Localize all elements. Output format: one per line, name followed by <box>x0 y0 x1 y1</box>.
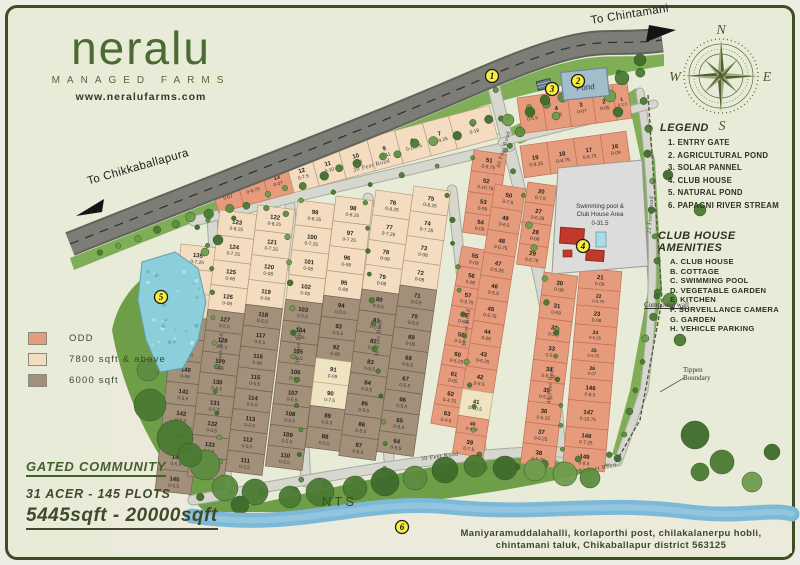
tree <box>645 125 653 133</box>
site-layout-map: 150-07140-6.75130-07120-7.5110-10100-129… <box>0 0 800 565</box>
legend-title: LEGEND <box>660 122 796 134</box>
tree <box>201 248 209 256</box>
legend-item: 1. ENTRY GATE <box>660 137 796 150</box>
tree <box>371 468 399 496</box>
tree <box>379 153 386 160</box>
club-house-amenities: CLUB HOUSE AMENITIES A. CLUB HOUSEB. COT… <box>658 230 798 334</box>
plot-size: 0-08 <box>300 290 311 297</box>
club-house-area: Swimming pool & Club House Area 0-31.5 <box>552 160 648 274</box>
tree <box>231 216 236 221</box>
compound-wall-label: Compound wall <box>644 301 689 309</box>
outbuilding <box>563 250 572 257</box>
brand-website: www.neralufarms.com <box>36 91 246 103</box>
tree <box>575 456 581 462</box>
tree <box>331 190 336 195</box>
plot-color-key: ODD7800 sqft & above6000 sqft <box>28 332 166 395</box>
svg-text:2: 2 <box>575 76 581 86</box>
tree <box>212 341 217 346</box>
project-summary: GATED COMMUNITY 31 ACER - 145 PLOTS 5445… <box>26 458 218 530</box>
plot-number: 21 <box>597 275 605 282</box>
tree <box>507 143 512 148</box>
tree <box>283 211 289 217</box>
amenity-item: B. COTTAGE <box>658 267 798 277</box>
arrow-to-chikkaballapura <box>76 199 104 216</box>
tree <box>195 225 200 230</box>
amenity-item: D. VEGETABLE GARDEN <box>658 286 798 296</box>
tree <box>204 209 214 219</box>
tree <box>463 334 467 338</box>
legend-item: 2. AGRICULTURAL POND <box>660 150 796 163</box>
tree <box>554 354 558 358</box>
plot-size: 0-06 <box>252 360 263 367</box>
tree <box>453 131 462 140</box>
tree <box>336 165 343 172</box>
tree <box>210 266 214 270</box>
plot-key-swatch <box>28 332 47 345</box>
tree <box>294 403 299 408</box>
address: Maniyaramuddalahalli, korlaporthi post, … <box>430 528 792 551</box>
tree <box>710 450 734 474</box>
tree <box>217 435 222 440</box>
plot-number: 116 <box>253 354 264 361</box>
tree <box>186 212 196 222</box>
plot-number: 115 <box>250 374 261 381</box>
tree <box>287 280 293 286</box>
tree <box>650 178 656 184</box>
tree <box>429 137 438 146</box>
svg-text:3: 3 <box>549 84 555 94</box>
plot-number: 141 <box>178 389 189 396</box>
address-line-2: chintamani taluk, Chikaballapur district… <box>430 540 792 552</box>
svg-text:1: 1 <box>490 71 495 81</box>
tree <box>504 148 508 152</box>
tree <box>265 191 271 197</box>
tree <box>652 234 657 239</box>
tree <box>135 236 141 242</box>
tree <box>471 156 475 160</box>
compass-rose: N E S W <box>669 23 772 134</box>
tree <box>560 447 564 451</box>
marker-4: 4 <box>577 240 590 253</box>
tree <box>367 272 371 276</box>
brand-tagline: MANAGED FARMS <box>36 75 246 86</box>
tree <box>544 299 550 305</box>
tree <box>681 421 709 449</box>
tree <box>294 377 299 382</box>
plot-number: 112 <box>243 437 254 444</box>
amenity-item: C. SWIMMING POOL <box>658 276 798 286</box>
agricultural-pond: Pond <box>561 68 610 101</box>
tree <box>290 354 295 359</box>
tree <box>636 68 645 77</box>
tree <box>510 169 515 174</box>
brand-name: neralu <box>36 24 246 72</box>
plot-size: 0-09 <box>551 310 562 317</box>
tree <box>540 95 550 105</box>
tree <box>554 330 559 335</box>
tree <box>213 235 223 245</box>
tree <box>297 452 301 456</box>
tree <box>435 164 439 168</box>
tree <box>215 411 219 415</box>
tree <box>376 369 381 374</box>
tree <box>470 119 477 126</box>
plot-key-label: 6000 sqft <box>69 375 119 386</box>
svg-text:Club House Area: Club House Area <box>577 211 624 218</box>
plot-number: 110 <box>280 453 291 460</box>
amenities-title: CLUB HOUSE AMENITIES <box>658 230 798 254</box>
marker-2: 2 <box>572 75 585 88</box>
tree <box>464 359 470 365</box>
svg-text:0-31.5: 0-31.5 <box>591 221 609 227</box>
tree <box>205 243 209 247</box>
tree <box>153 226 160 233</box>
gated-community-label: GATED COMMUNITY <box>26 459 166 477</box>
tree <box>115 243 120 248</box>
tree <box>493 456 517 480</box>
plot-size: 0-06 <box>330 351 341 358</box>
tree <box>471 428 476 433</box>
plot-size: 0-06 <box>180 373 191 380</box>
tree <box>279 486 301 508</box>
plot-number: 119 <box>261 289 272 296</box>
tree <box>214 364 219 369</box>
tree <box>640 97 647 104</box>
svg-text:6: 6 <box>400 522 405 532</box>
tree <box>445 193 450 198</box>
tree <box>450 217 456 223</box>
plot-size: 0-08 <box>225 275 236 282</box>
plot-key-label: ODD <box>69 333 94 344</box>
tree <box>299 182 306 189</box>
tree <box>243 202 250 209</box>
tree <box>399 172 405 178</box>
tree <box>456 264 461 269</box>
tree <box>521 193 525 197</box>
tree <box>457 288 461 292</box>
tree <box>97 250 103 256</box>
tree <box>531 244 538 251</box>
tree <box>472 404 476 408</box>
tree <box>525 222 532 229</box>
marker-3: 3 <box>546 83 559 96</box>
tree <box>606 452 612 458</box>
tree <box>493 87 498 92</box>
tree <box>226 204 234 212</box>
compass-w: W <box>669 70 682 85</box>
tree <box>524 459 546 481</box>
tree <box>691 463 709 481</box>
acreage-label: 31 ACER - 145 PLOTS <box>26 487 218 501</box>
tree <box>206 218 211 223</box>
tree <box>525 107 535 117</box>
tree <box>372 346 378 352</box>
compass-e: E <box>762 70 772 85</box>
tree <box>613 107 623 117</box>
plot-key-row: 6000 sqft <box>28 374 166 387</box>
plot-number: 148 <box>581 433 592 440</box>
plot-number: 147 <box>583 410 594 417</box>
tree <box>633 388 638 393</box>
tree <box>365 226 369 230</box>
plot-size: 0-08 <box>303 265 314 272</box>
plot-key-label: 7800 sqft & above <box>69 354 166 365</box>
size-range-label: 5445sqft - 20000sqft <box>26 505 218 530</box>
tree <box>211 316 215 320</box>
tree <box>467 383 472 388</box>
tree <box>299 477 304 482</box>
tree <box>542 276 548 282</box>
tree <box>410 139 419 148</box>
tree <box>553 462 577 486</box>
tree <box>299 198 304 203</box>
marker-1: 1 <box>486 70 499 83</box>
tree <box>366 249 371 254</box>
compass-n: N <box>715 23 726 38</box>
plot-size: 0-5.5 <box>177 395 189 402</box>
legend-item: 3. SOLAR PANNEL <box>660 162 796 175</box>
svg-text:4: 4 <box>580 241 586 251</box>
plot-size: 0-07 <box>587 371 596 377</box>
tree <box>368 182 372 186</box>
tree <box>580 468 600 488</box>
tree <box>383 442 387 446</box>
plot-size: 0-08 <box>263 270 274 277</box>
tree <box>320 172 329 181</box>
tree <box>649 313 657 321</box>
tree <box>648 207 655 214</box>
plot-size: 0-8.5 <box>584 392 596 399</box>
amenity-item: A. CLUB HOUSE <box>658 257 798 267</box>
legend-item: 6. PAPAGNI RIVER STREAM <box>660 200 796 213</box>
tree <box>290 306 296 312</box>
tree <box>552 112 560 120</box>
plot-size: 0-7.25 <box>579 439 593 446</box>
tree <box>264 205 270 211</box>
tree <box>299 428 303 432</box>
tree <box>379 394 383 398</box>
plot-number: 111 <box>240 458 251 465</box>
plot-number: 118 <box>258 312 269 319</box>
tree <box>644 150 652 158</box>
swimming-pool <box>596 232 606 247</box>
tree <box>559 423 563 427</box>
tree <box>210 290 215 295</box>
svg-text:5: 5 <box>159 292 164 302</box>
legend-item: 4. CLUB HOUSE <box>660 175 796 188</box>
tree <box>450 241 454 245</box>
tree <box>642 335 649 342</box>
plot-key-row: ODD <box>28 332 166 345</box>
tippen-leader-line <box>660 378 684 392</box>
plot-size: 0-09 <box>595 281 605 288</box>
plot-number: 146 <box>585 385 596 392</box>
club-house-label: Swimming pool & <box>576 203 625 210</box>
plot-size: 0-08 <box>222 300 233 307</box>
plot-size: 0-08 <box>554 287 565 294</box>
plot-size: 0-08 <box>260 295 271 302</box>
tree <box>403 466 427 490</box>
brand-logo: neralu MANAGED FARMS www.neralufarms.com <box>36 24 246 103</box>
tree <box>213 389 217 393</box>
tree <box>285 234 291 240</box>
tree <box>369 297 375 303</box>
address-line-1: Maniyaramuddalahalli, korlaporthi post, … <box>430 528 792 540</box>
tree <box>286 260 291 265</box>
tree <box>674 334 686 346</box>
tree <box>555 377 560 382</box>
tree <box>381 419 386 424</box>
plot-size: 0-09 <box>327 373 338 380</box>
marker-5: 5 <box>155 291 168 304</box>
plot-number: 142 <box>176 411 187 418</box>
tree <box>282 185 287 190</box>
tree <box>622 432 627 437</box>
tree <box>559 403 563 407</box>
scale-note: NTS <box>322 494 357 509</box>
plot-size: 0-08 <box>338 286 349 293</box>
tree <box>172 220 180 228</box>
plot-number: 114 <box>248 395 259 402</box>
tree <box>394 151 401 158</box>
amenity-item: H. VEHICLE PARKING <box>658 324 798 334</box>
amenity-item: G. GARDEN <box>658 315 798 325</box>
tree <box>231 496 249 514</box>
tree <box>464 455 486 477</box>
tree <box>515 127 525 137</box>
plot-key-row: 7800 sqft & above <box>28 353 166 366</box>
legend-item: 5. NATURAL POND <box>660 187 796 200</box>
plot-number: 23 <box>593 311 601 318</box>
tree <box>432 457 458 483</box>
cottage-building <box>586 249 605 261</box>
tree <box>353 159 361 167</box>
tree <box>371 321 376 326</box>
tree <box>742 472 762 492</box>
marker-6: 6 <box>396 521 409 534</box>
tree <box>460 312 465 317</box>
tree <box>502 114 514 126</box>
legend: LEGEND 1. ENTRY GATE2. AGRICULTURAL POND… <box>660 122 796 213</box>
tree <box>290 330 296 336</box>
plot-number: 113 <box>245 416 256 423</box>
plot-size: 0-08 <box>591 318 601 325</box>
plot-key-swatch <box>28 353 47 366</box>
tippen-boundary-label: Tippen Boundary <box>683 366 711 382</box>
tree <box>363 200 368 205</box>
tree <box>764 444 780 460</box>
plot-size: 0-08 <box>341 261 352 268</box>
tree <box>634 54 646 66</box>
tree <box>615 71 629 85</box>
tree <box>626 408 633 415</box>
plot-key-swatch <box>28 374 47 387</box>
tree <box>485 115 493 123</box>
plot-number: 117 <box>255 333 266 340</box>
tree <box>640 359 645 364</box>
